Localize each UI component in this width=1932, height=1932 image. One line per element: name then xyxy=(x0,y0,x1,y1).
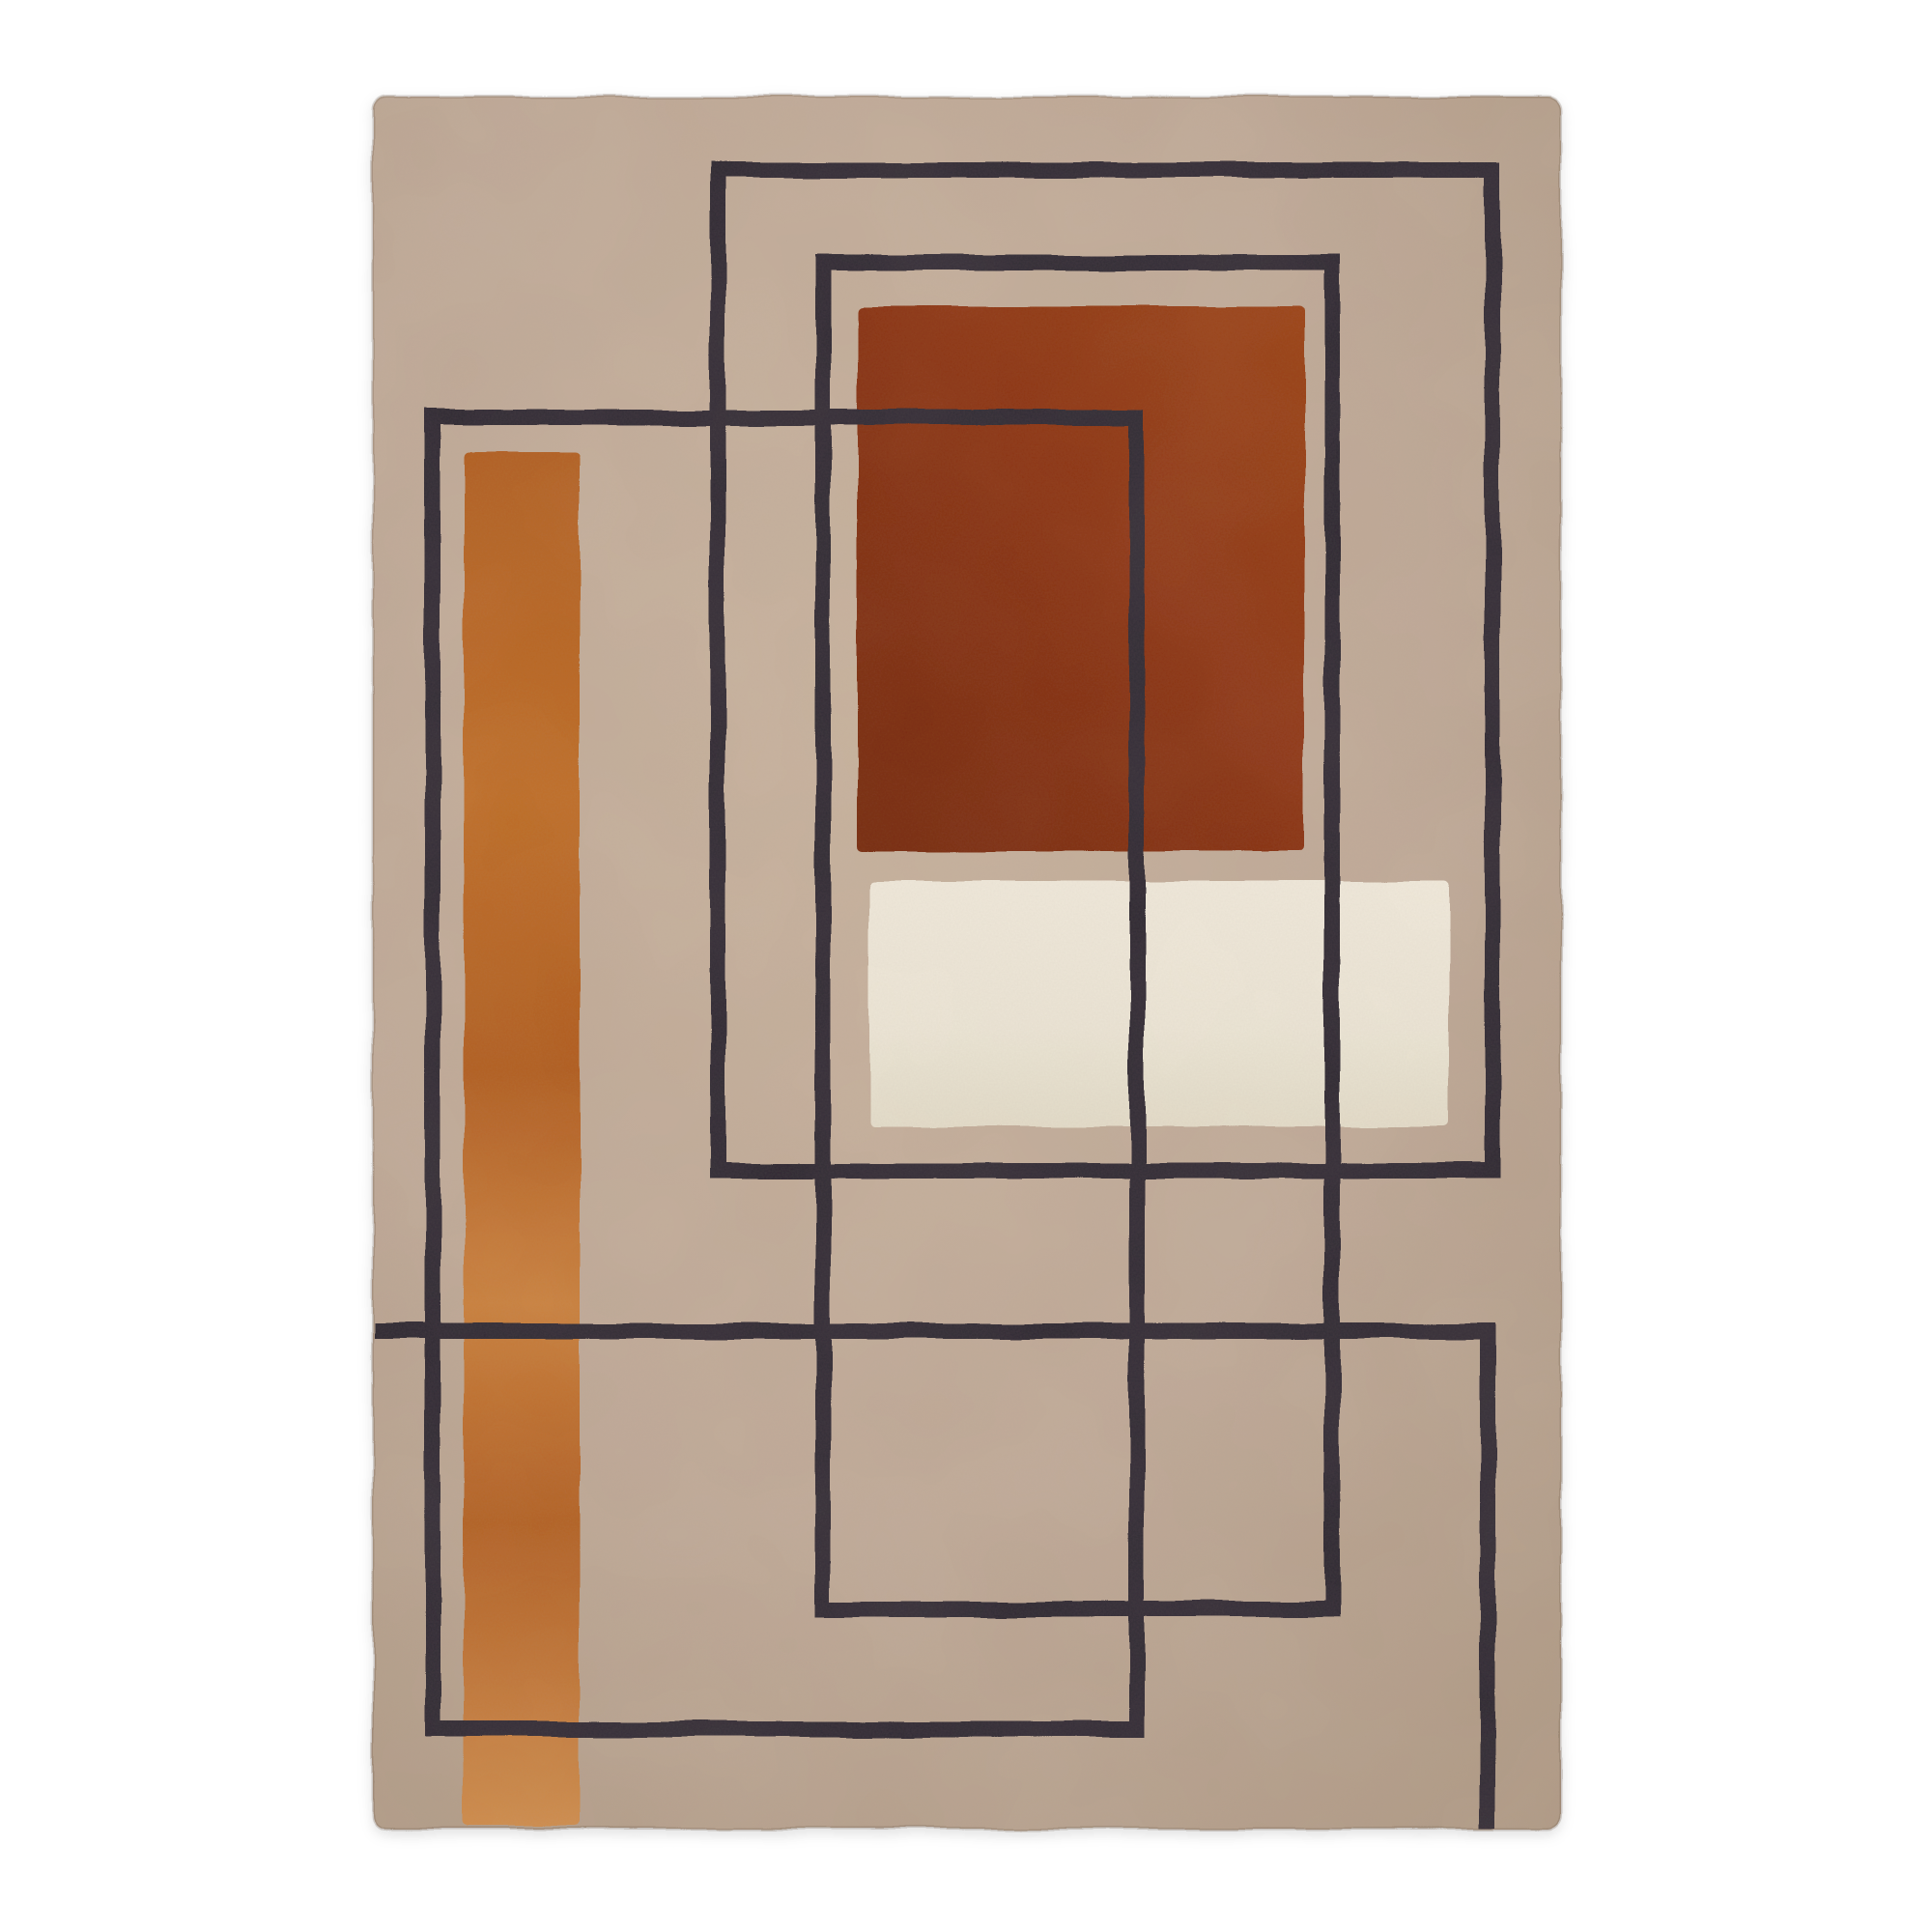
rug xyxy=(373,97,1561,1829)
rug-image xyxy=(0,0,1932,1932)
wool-grain-overlay xyxy=(373,97,1561,1829)
product-photo xyxy=(0,0,1932,1932)
